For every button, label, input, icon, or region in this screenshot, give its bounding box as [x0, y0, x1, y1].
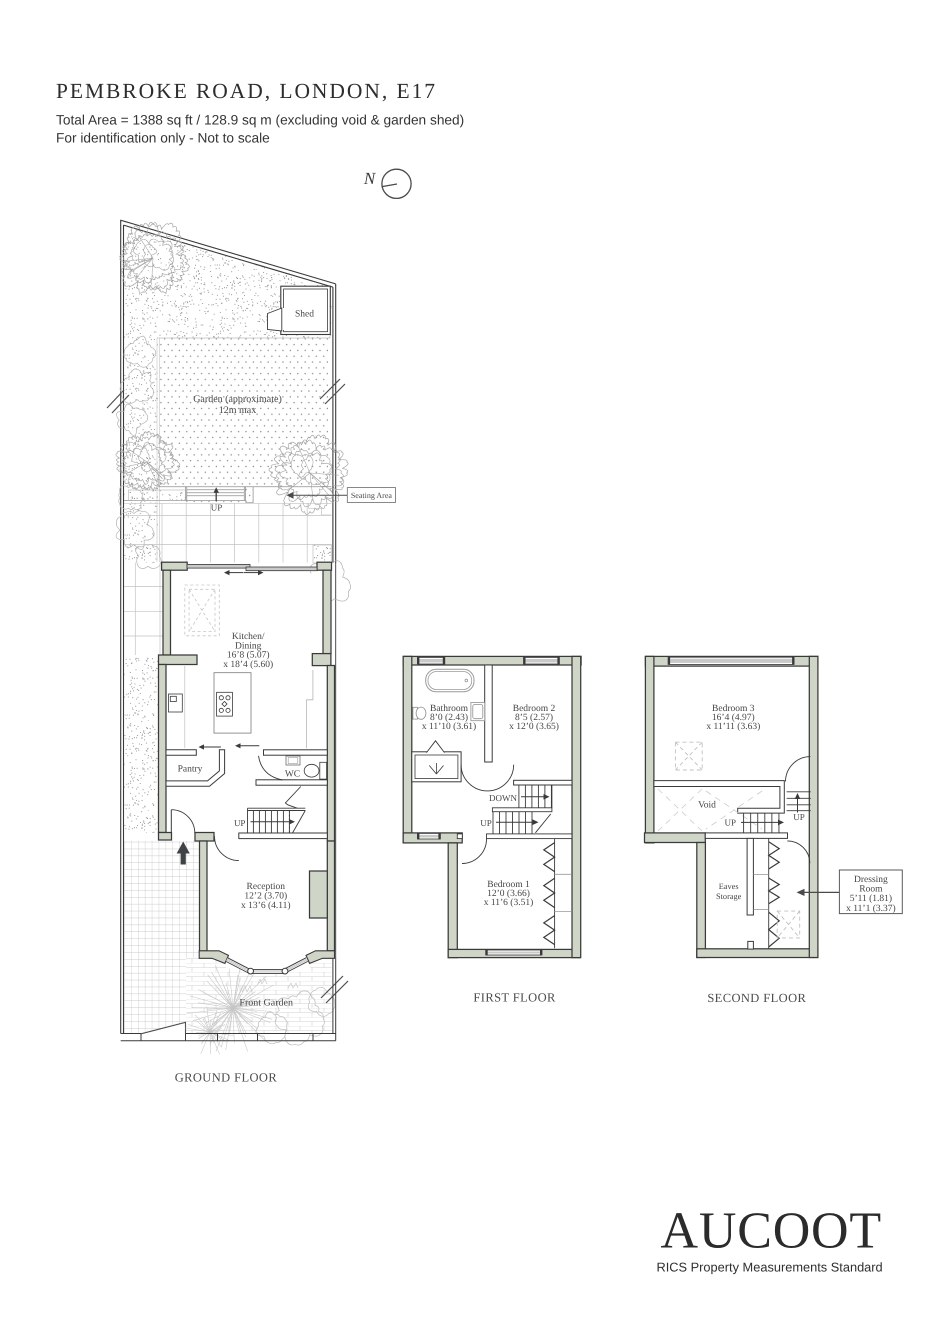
svg-text:x 11’1 (3.37): x 11’1 (3.37)	[846, 904, 896, 914]
svg-text:For identification only - Not: For identification only - Not to scale	[56, 131, 270, 146]
svg-text:UP: UP	[211, 503, 223, 513]
svg-text:Room: Room	[859, 885, 883, 895]
svg-text:UP: UP	[793, 812, 805, 822]
svg-text:x 18’4 (5.60): x 18’4 (5.60)	[223, 660, 273, 670]
svg-text:WC: WC	[285, 770, 300, 780]
svg-text:Void: Void	[698, 801, 716, 811]
svg-text:x 12’0 (3.65): x 12’0 (3.65)	[509, 722, 559, 732]
svg-text:N: N	[363, 169, 377, 188]
svg-text:5’11 (1.81): 5’11 (1.81)	[850, 894, 892, 904]
svg-text:Eaves: Eaves	[719, 882, 739, 891]
svg-text:x 13’6 (4.11): x 13’6 (4.11)	[241, 901, 291, 911]
svg-text:PEMBROKE ROAD, LONDON, E17: PEMBROKE ROAD, LONDON, E17	[56, 79, 437, 103]
svg-text:FIRST FLOOR: FIRST FLOOR	[473, 991, 556, 1005]
svg-text:RICS Property Measurements Sta: RICS Property Measurements Standard	[657, 1259, 883, 1274]
svg-text:12m max: 12m max	[219, 405, 257, 416]
svg-text:Shed: Shed	[295, 310, 314, 320]
svg-text:Reception: Reception	[247, 882, 286, 892]
svg-text:Garden (approximate): Garden (approximate)	[193, 394, 282, 405]
svg-text:x 11’6 (3.51): x 11’6 (3.51)	[484, 898, 534, 908]
svg-text:SECOND FLOOR: SECOND FLOOR	[707, 991, 806, 1005]
svg-text:x 11’10 (3.61): x 11’10 (3.61)	[422, 722, 476, 732]
svg-text:UP: UP	[234, 818, 246, 828]
svg-text:Dressing: Dressing	[854, 875, 888, 885]
svg-text:AUCOOT: AUCOOT	[661, 1203, 882, 1260]
svg-text:Front Garden: Front Garden	[239, 998, 293, 1009]
svg-text:12’2 (3.70): 12’2 (3.70)	[244, 891, 287, 901]
svg-text:Pantry: Pantry	[178, 765, 203, 775]
svg-text:GROUND FLOOR: GROUND FLOOR	[175, 1070, 278, 1084]
svg-text:UP: UP	[725, 818, 737, 828]
svg-text:Total Area = 1388 sq ft / 128.: Total Area = 1388 sq ft / 128.9 sq m (ex…	[56, 113, 464, 128]
svg-text:DOWN: DOWN	[489, 793, 517, 803]
svg-text:x 11’11 (3.63): x 11’11 (3.63)	[706, 722, 760, 732]
svg-text:Storage: Storage	[716, 892, 742, 901]
svg-text:UP: UP	[480, 818, 492, 828]
svg-text:Seating Area: Seating Area	[351, 491, 393, 500]
